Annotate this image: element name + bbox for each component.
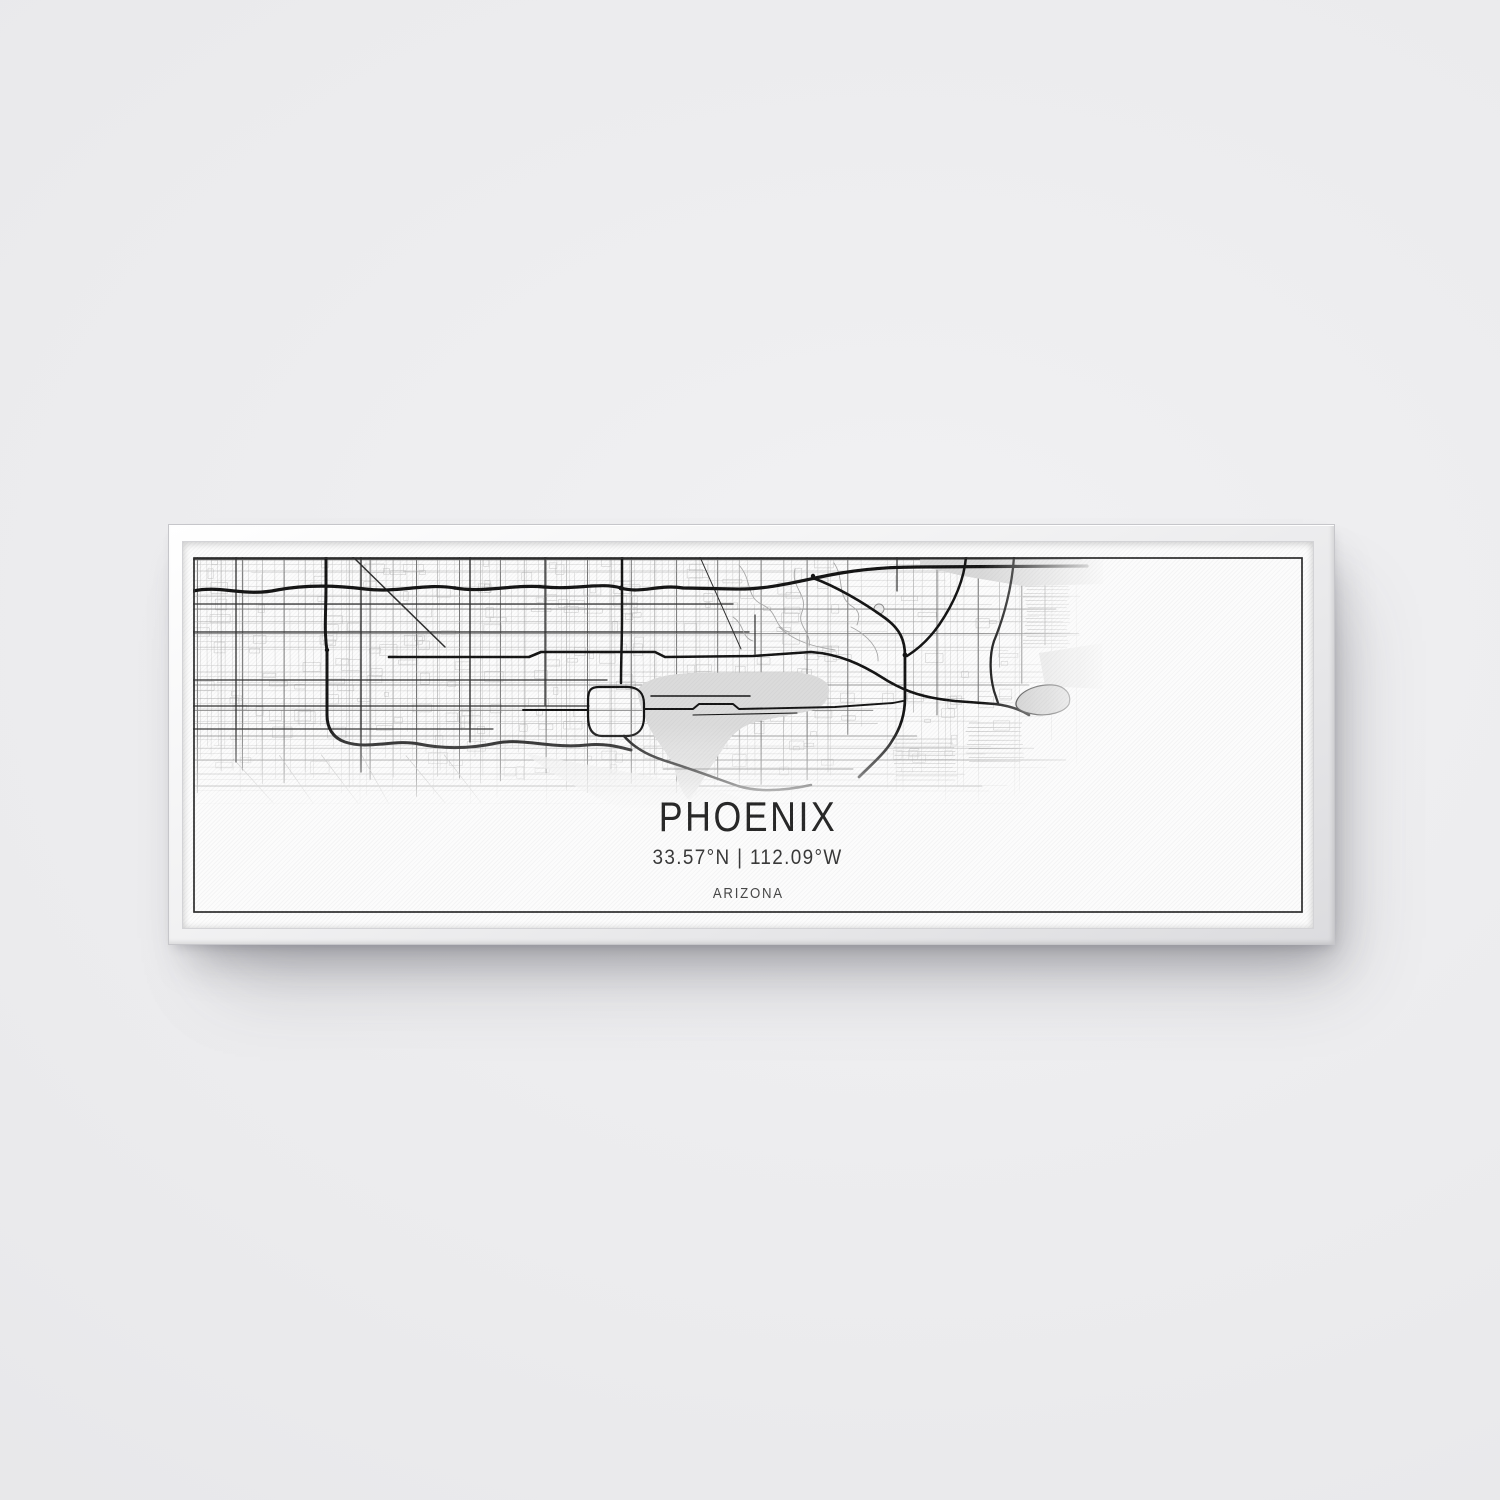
highway-loop202 (813, 578, 905, 777)
map-lake (1016, 685, 1070, 715)
coordinates-label: 33.57°N | 112.09°W (183, 846, 1313, 870)
canvas-print: PHOENIX 33.57°N | 112.09°W ARIZONA (183, 542, 1313, 928)
region-label: ARIZONA (183, 885, 1313, 902)
wall: PHOENIX 33.57°N | 112.09°W ARIZONA (0, 0, 1500, 1500)
print-caption: PHOENIX 33.57°N | 112.09°W ARIZONA (183, 792, 1313, 902)
map-landuse-areas (525, 557, 1103, 810)
picture-frame: PHOENIX 33.57°N | 112.09°W ARIZONA (168, 524, 1335, 945)
highway-sr51 (621, 557, 622, 683)
city-title: PHOENIX (659, 792, 838, 842)
